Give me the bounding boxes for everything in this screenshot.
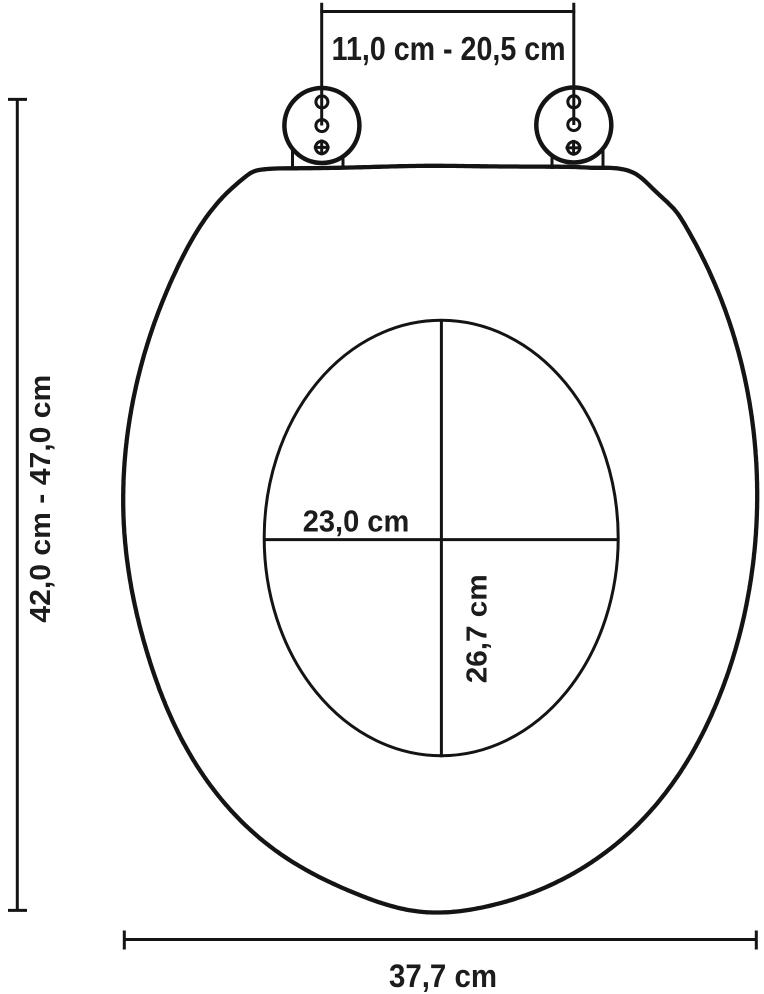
svg-text:42,0 cm - 47,0 cm: 42,0 cm - 47,0 cm <box>25 375 57 623</box>
svg-text:26,7 cm: 26,7 cm <box>462 574 494 683</box>
svg-text:11,0 cm - 20,5 cm: 11,0 cm - 20,5 cm <box>332 30 566 67</box>
svg-text:37,7 cm: 37,7 cm <box>389 958 497 994</box>
svg-text:23,0 cm: 23,0 cm <box>303 505 410 539</box>
